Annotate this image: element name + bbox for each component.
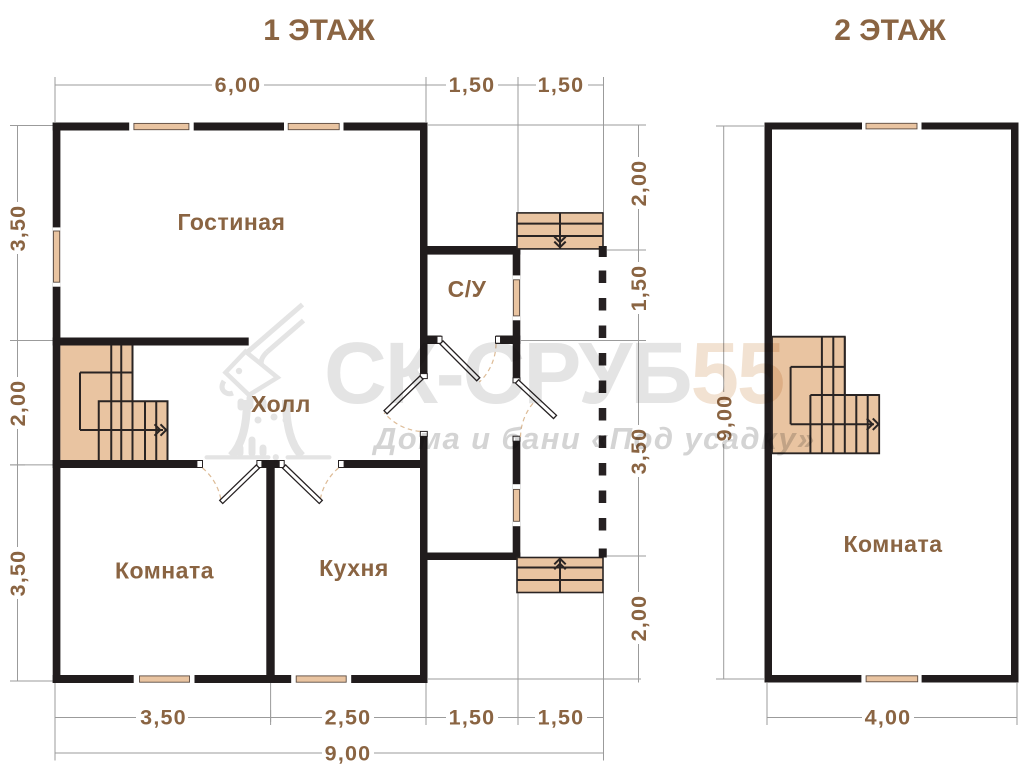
svg-text:Дома и бани «Под усадку»: Дома и бани «Под усадку» bbox=[371, 421, 816, 456]
svg-text:СК-СРУБ55: СК-СРУБ55 bbox=[324, 325, 783, 422]
